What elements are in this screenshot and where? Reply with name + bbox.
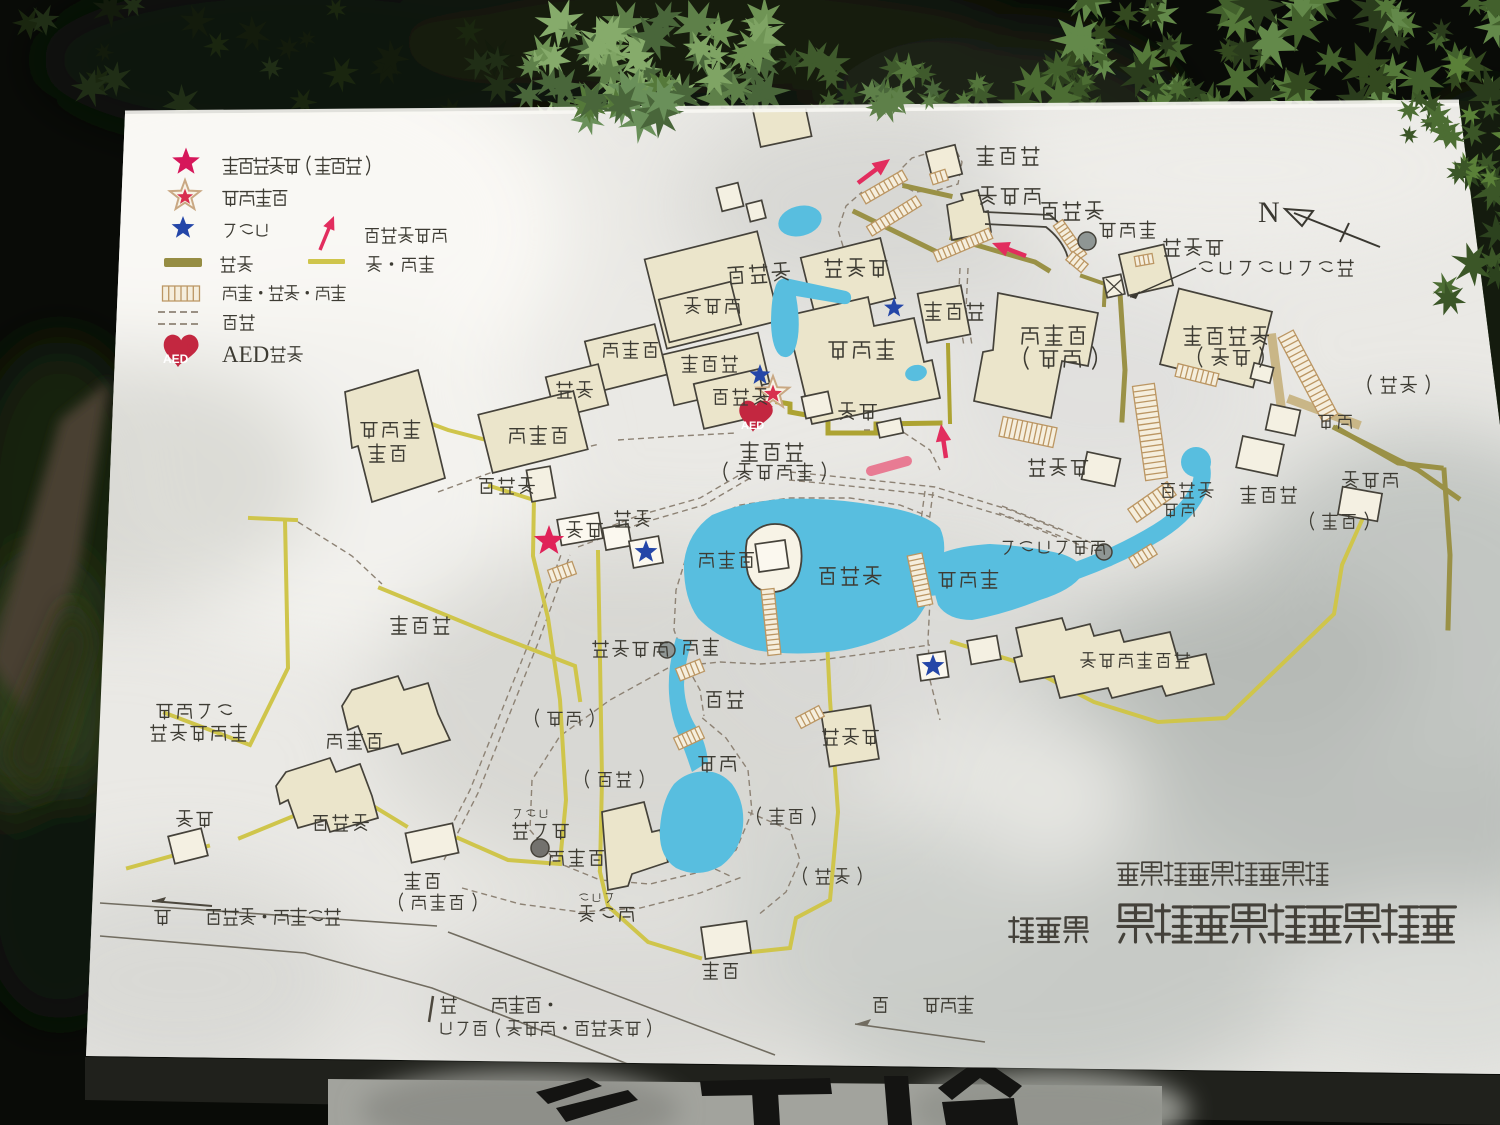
svg-text:N: N	[1258, 196, 1280, 229]
svg-text:AED: AED	[163, 352, 189, 366]
svg-text:AED: AED	[222, 342, 269, 367]
svg-text:AED: AED	[741, 420, 764, 432]
